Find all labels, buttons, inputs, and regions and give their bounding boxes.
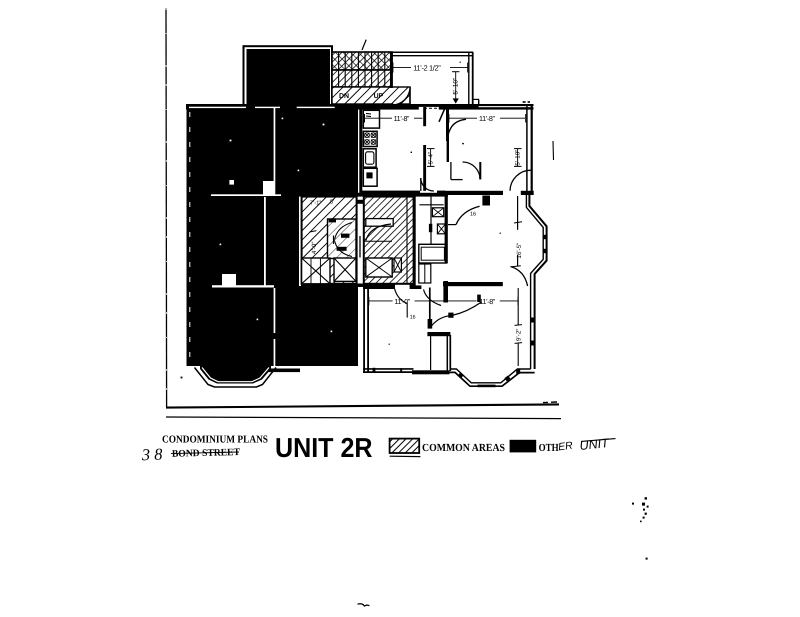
svg-text:OTH: OTH xyxy=(539,442,559,454)
svg-text:5’-10”: 5’-10” xyxy=(515,150,522,166)
svg-text:16’-5”: 16’-5” xyxy=(516,243,523,259)
svg-text:ER: ER xyxy=(558,440,574,454)
svg-text:COMMON AREAS: COMMON AREAS xyxy=(422,442,505,454)
svg-text:9’-2”: 9’-2” xyxy=(515,329,522,341)
svg-text:UP: UP xyxy=(374,93,384,100)
svg-text:UNIT 2R: UNIT 2R xyxy=(275,432,373,463)
svg-text:4’-0”: 4’-0” xyxy=(311,242,318,254)
svg-text:7’-1”: 7’-1” xyxy=(310,201,321,207)
svg-text:11’-8”: 11’-8” xyxy=(479,114,495,123)
svg-text:11’-0”: 11’-0” xyxy=(394,297,410,306)
svg-text:5’-4”: 5’-4” xyxy=(428,152,435,164)
svg-text:3 8: 3 8 xyxy=(140,444,163,464)
svg-text:5’-10”: 5’-10” xyxy=(452,78,459,95)
svg-text:11’-8”: 11’-8” xyxy=(394,114,410,123)
svg-text:11’-2 1/2”: 11’-2 1/2” xyxy=(413,63,441,72)
svg-text:16: 16 xyxy=(410,315,416,321)
svg-text:16: 16 xyxy=(470,212,476,218)
svg-text:5’: 5’ xyxy=(330,200,334,206)
svg-text:DN: DN xyxy=(339,93,349,100)
svg-text:CONDOMINIUM PLANS: CONDOMINIUM PLANS xyxy=(162,435,268,446)
svg-text:11’-8”: 11’-8” xyxy=(479,297,495,306)
